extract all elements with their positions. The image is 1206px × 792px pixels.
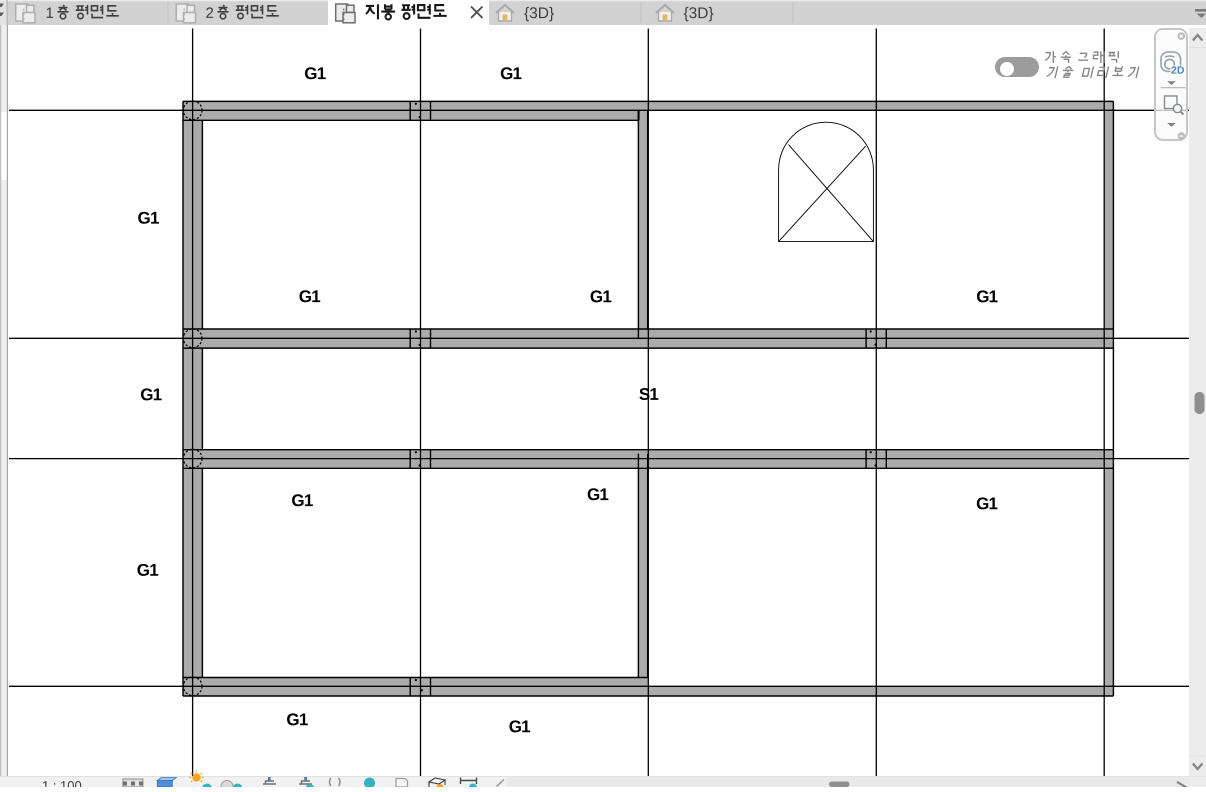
svg-text:G1: G1 (291, 491, 312, 510)
svg-text:S1: S1 (639, 385, 659, 404)
svg-text:G1: G1 (976, 494, 997, 513)
svg-text:G1: G1 (587, 485, 608, 504)
svg-text:G1: G1 (286, 710, 307, 729)
svg-text:G1: G1 (509, 717, 530, 736)
svg-text:G1: G1 (976, 287, 997, 306)
svg-text:G1: G1 (590, 287, 611, 306)
svg-text:G1: G1 (304, 64, 325, 83)
svg-text:G1: G1 (299, 287, 320, 306)
svg-text:{3D}: {3D} (524, 5, 554, 22)
svg-text:1: 1 (45, 5, 53, 22)
svg-text:{3D}: {3D} (683, 5, 713, 22)
svg-text:G1: G1 (138, 209, 159, 228)
svg-text:G1: G1 (137, 561, 158, 580)
svg-text:1 : 100: 1 : 100 (42, 778, 82, 787)
svg-text:2D: 2D (1171, 65, 1185, 77)
svg-text:G1: G1 (140, 385, 161, 404)
svg-text:G1: G1 (500, 64, 521, 83)
svg-text:2: 2 (205, 5, 213, 22)
